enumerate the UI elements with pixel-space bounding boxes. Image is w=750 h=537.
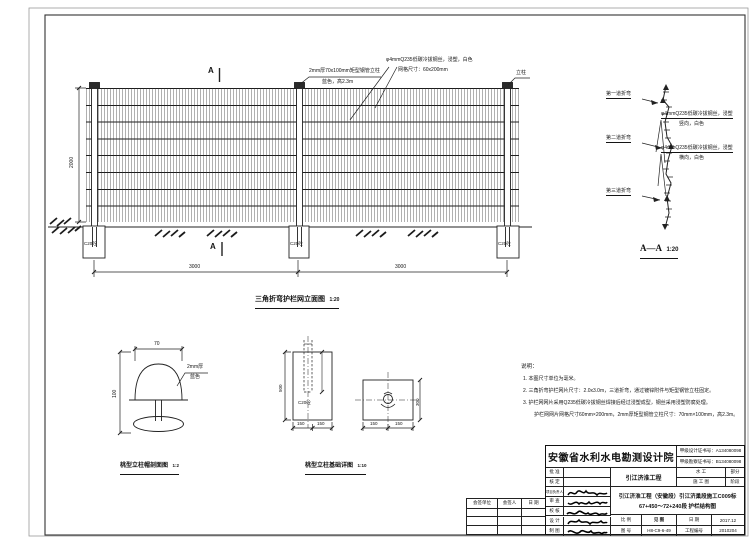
- cap-note-line2: 蓝色: [190, 375, 200, 380]
- drawing-title-line1: 引江济淮工程（安徽段）引江济巢段施工C009标: [619, 492, 737, 500]
- role-design: 设 计: [546, 517, 564, 527]
- countersign-table: 会签单位 会签人 日 期: [466, 498, 546, 535]
- sig-cell: [564, 468, 611, 478]
- signature-scribble: [566, 489, 608, 497]
- drawing-sheet: A A 2mm厚70x100mm矩型钢管立柱 蓝色，高2.3m φ4mmQ235…: [0, 0, 750, 537]
- foundation-dim-depth: 500: [279, 384, 284, 392]
- drawing-title-line2: 67+450～72+240段 护栏结构图: [639, 502, 716, 510]
- scale-label: 比 例: [611, 515, 642, 525]
- height-dimension: 2000: [70, 157, 75, 168]
- role-lead: 项目负责人: [546, 487, 564, 497]
- role-verify: 核 定: [546, 478, 564, 488]
- aa-caption-scale: 1:20: [666, 247, 678, 253]
- foundation-detail-linework: [283, 336, 422, 431]
- span-dimension-1: 3000: [189, 265, 200, 270]
- countersign-empty-cell: [498, 517, 522, 526]
- date-value: 2017.12: [712, 515, 744, 525]
- foundation-caption-scale: 1:10: [357, 463, 366, 468]
- countersign-empty-cell: [522, 526, 545, 535]
- mesh-annotation-line1: φ4mmQ235低碳冷拔钢丝，浸塑，白色: [386, 58, 473, 63]
- role-check: 校 核: [546, 507, 564, 517]
- foundation-dim-side: 300: [416, 398, 421, 406]
- discipline-value: 水 工: [677, 468, 726, 478]
- role-review: 审 查: [546, 497, 564, 507]
- countersign-col-person: 会签人: [498, 499, 522, 509]
- date-label: 日 期: [677, 515, 712, 525]
- footing-label-3: C20砼: [498, 242, 511, 247]
- foundation-dim-seg-2: 150: [317, 422, 325, 427]
- role-approve: 批 准: [546, 468, 564, 478]
- section-marker-a-top: A: [208, 67, 214, 75]
- scale-value: 见 图: [642, 515, 677, 525]
- aa-wire-horizontal-line2: 横向，白色: [679, 156, 704, 161]
- countersign-empty-cell: [522, 509, 545, 518]
- bend-label-3: 第三道折弯: [606, 189, 631, 196]
- cap-dim-height: 100: [113, 390, 118, 398]
- cap-dim-width: 70: [154, 342, 160, 347]
- foundation-concrete-label: C20砼: [298, 401, 311, 406]
- countersign-col-unit: 会签单位: [467, 499, 498, 509]
- cap-caption: 桃型立柱帽剖面图 1:2: [120, 454, 179, 475]
- elevation-caption-text: 三角折弯护栏网立面图: [255, 296, 325, 303]
- ground-hatch: [50, 218, 438, 237]
- span-dimension-2: 3000: [395, 265, 406, 270]
- footing-label-1: C20砼: [84, 242, 97, 247]
- projno-value: 2010204: [712, 526, 744, 536]
- sig-cell: [564, 478, 611, 488]
- aa-wire-horizontal-line1: φ4mmQ235低碳冷拔钢丝，浸塑: [661, 146, 733, 153]
- cert-survey: 甲级勘察证书号：B134080098: [677, 457, 744, 468]
- cert-design: 甲级设计证书号：A134080098: [677, 446, 744, 457]
- foundation-caption-text: 桃型立柱基础详图: [305, 463, 353, 469]
- aa-caption: A—A 1:20: [640, 238, 678, 259]
- footing-label-2: C20砼: [290, 242, 303, 247]
- signature-scribble: [566, 509, 608, 517]
- title-block: 安徽省水利水电勘测设计院 甲级设计证书号：A134080098 甲级勘察证书号：…: [545, 445, 745, 535]
- figno-label: 图 号: [611, 526, 642, 536]
- aa-wire-vertical-line1: φ4mmQ235低碳冷拔钢丝，浸塑: [661, 112, 733, 119]
- signature-scribble: [566, 518, 608, 526]
- countersign-empty-cell: [498, 509, 522, 518]
- signature-scribble: [566, 528, 608, 536]
- projno-label: 工程编号: [677, 526, 712, 536]
- foundation-caption: 桃型立柱基础详图 1:10: [305, 454, 366, 475]
- signature-scribble: [566, 499, 608, 507]
- phase-value: 施 工 图: [677, 478, 726, 488]
- foundation-dim-seg-3: 150: [370, 422, 378, 427]
- aa-wire-vertical-line2: 竖向，白色: [679, 122, 704, 127]
- note-item-3b: 护栏网网片网格尺寸60mm×200mm，2mm厚矩型钢管立柱尺寸：70mm×10…: [534, 413, 738, 418]
- note-item-3: 3. 护栏网网片采用Q235低碳冷拔钢丝焊接后经过浸塑成型，钢丝采用浸塑防腐处理…: [523, 401, 711, 406]
- cap-caption-text: 桃型立柱帽剖面图: [120, 463, 168, 469]
- note-item-1: 1. 本图尺寸单位为毫米。: [523, 377, 579, 382]
- figno-value: H8-C9-6-49: [642, 526, 677, 536]
- drawing-title: 引江济淮工程（安徽段）引江济巢段施工C009标 67+450～72+240段 护…: [611, 487, 744, 515]
- countersign-empty-cell: [522, 517, 545, 526]
- cap-caption-scale: 1:2: [172, 463, 179, 468]
- countersign-col-date: 日 期: [522, 499, 545, 509]
- cap-note-line1: 2mm厚: [187, 365, 203, 370]
- discipline-label: 部分: [726, 468, 744, 478]
- countersign-empty-cell: [467, 517, 498, 526]
- project-name: 引江济淮工程: [611, 468, 677, 487]
- phase-label: 阶段: [726, 478, 744, 488]
- elevation-caption-scale: 1:20: [329, 297, 339, 303]
- foundation-dim-seg-1: 150: [297, 422, 305, 427]
- mesh-annotation-line2: 网格尺寸：60x200mm: [398, 68, 448, 73]
- section-aa-linework: [642, 84, 674, 230]
- notes-title: 说明：: [521, 365, 538, 371]
- note-item-2: 2. 三角折弯护栏网片尺寸：2.0x3.0m，三道折弯，通过镀锌附件与矩型钢管立…: [523, 389, 714, 394]
- bend-label-1: 第一道折弯: [606, 92, 631, 99]
- cap-detail-linework: [118, 346, 208, 435]
- foundation-dim-seg-4: 150: [395, 422, 403, 427]
- section-marker-a-bottom: A: [210, 243, 216, 251]
- elevation-caption: 三角折弯护栏网立面图 1:20: [255, 288, 339, 309]
- countersign-empty-cell: [467, 526, 498, 535]
- institute-name: 安徽省水利水电勘测设计院: [546, 446, 677, 468]
- countersign-empty-cell: [467, 509, 498, 518]
- role-draft: 制 图: [546, 526, 564, 535]
- aa-caption-text: A—A: [640, 243, 662, 253]
- countersign-empty-cell: [498, 526, 522, 535]
- post-annotation-line1: 2mm厚70x100mm矩型钢管立柱: [309, 69, 380, 74]
- bend-label-2: 第二道折弯: [606, 136, 631, 143]
- post-label: 立柱: [516, 71, 526, 76]
- post-annotation-line2: 蓝色，高2.3m: [322, 80, 353, 85]
